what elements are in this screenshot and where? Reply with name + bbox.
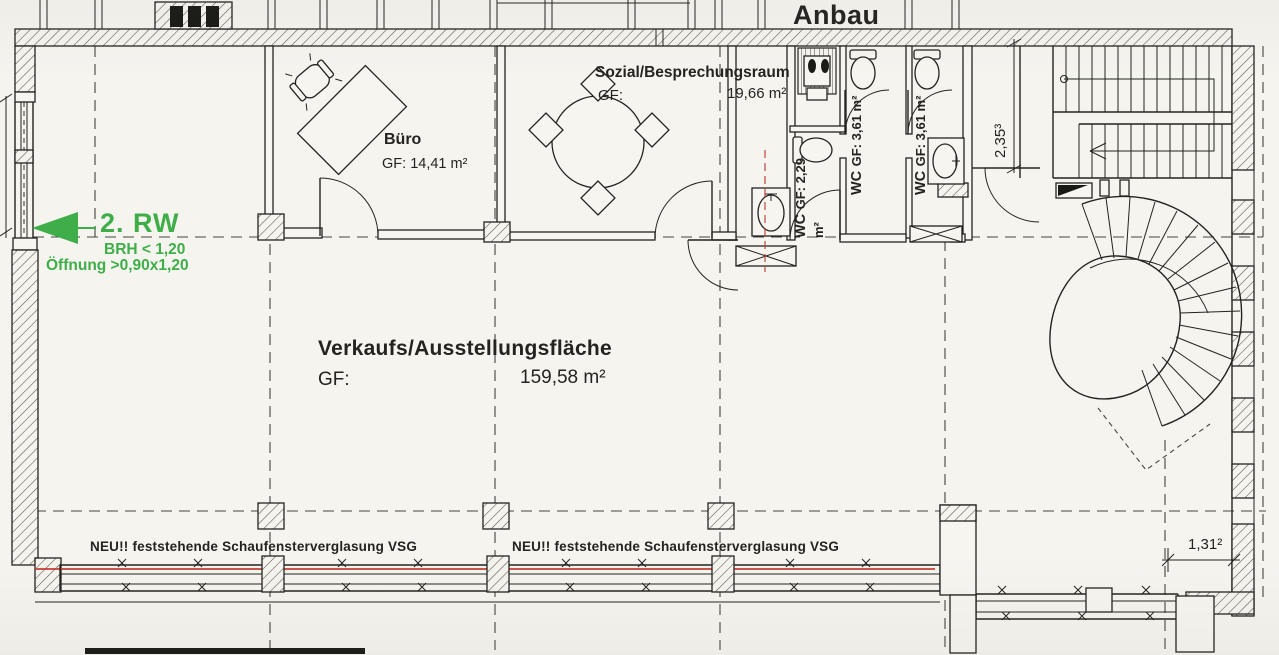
scan-artifact	[85, 648, 365, 654]
sales-area-value: 159,58 m²	[520, 368, 606, 389]
hall-door	[688, 240, 738, 290]
rescue-window-line1: BRH < 1,20	[104, 241, 185, 258]
sozial-gf-label: GF:	[598, 88, 623, 105]
stair-walkline	[1061, 76, 1215, 160]
wc-right-area: GF: 3,61 m²	[913, 96, 928, 167]
stair-width-dimension: 2,35³	[992, 78, 1009, 158]
buero-room-label: Büro	[384, 131, 421, 149]
buero-area-label: GF: 14,41 m²	[382, 157, 467, 173]
buero-door	[320, 178, 378, 236]
wc-mid-name: WC	[849, 171, 865, 195]
wc-right-name: WC	[913, 171, 929, 195]
sales-area-gf-label: GF:	[318, 370, 350, 391]
rescue-window-line2: Öffnung >0,90x1,20	[46, 257, 189, 274]
glazing-note-left: NEU!! feststehende Schaufensterverglasun…	[90, 540, 417, 555]
wc-mid-label: WC GF: 3,61 m²	[848, 95, 866, 195]
right-offset-dimension: 1,31²	[1188, 537, 1222, 554]
wc-mid-area: GF: 3,61 m²	[849, 96, 864, 167]
annex-title: Anbau	[793, 1, 880, 31]
rescue-window-title: 2. RW	[100, 209, 180, 239]
sozial-room-label: Sozial/Besprechungsraum	[595, 64, 790, 81]
shopfront-right	[976, 586, 1178, 620]
meeting-door	[655, 181, 712, 238]
piers	[940, 505, 1214, 653]
shopfront-left	[35, 556, 940, 602]
floorplan-canvas: Anbau Büro GF: 14,41 m² Sozial/Besprechu…	[0, 0, 1279, 655]
floorplan-linework	[0, 0, 1279, 655]
sales-area-title: Verkaufs/Ausstellungsfläche	[318, 337, 612, 360]
rescue-window-arrow-icon	[32, 212, 96, 244]
sink-unit	[798, 48, 836, 100]
glazing-note-right: NEU!! feststehende Schaufensterverglasun…	[512, 540, 839, 555]
stair-dimension-line	[1007, 39, 1021, 173]
u-staircase	[1007, 39, 1232, 198]
doors	[320, 90, 1040, 290]
sozial-area-value: 19,66 m²	[727, 86, 786, 103]
stair-room-door	[972, 168, 1040, 222]
wc-left-label: WC GF: 2,29 m²	[792, 150, 828, 238]
outer-walls	[12, 0, 1254, 616]
wc-left-name: WC	[793, 214, 809, 238]
wc-right-label: WC GF: 3,61 m²	[912, 95, 930, 195]
